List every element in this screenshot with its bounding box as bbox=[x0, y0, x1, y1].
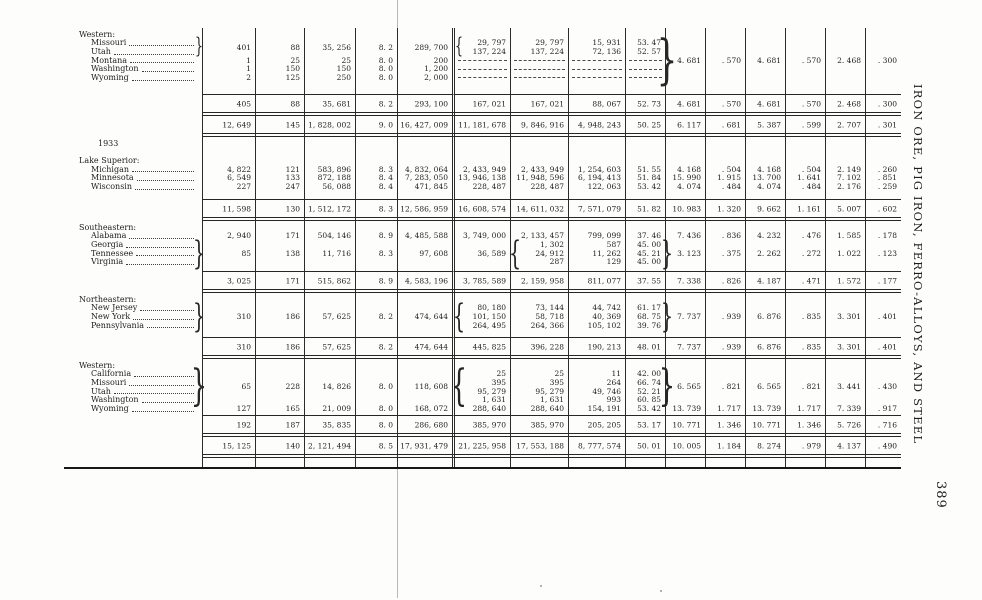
table-cell: 61. 1768. 7539. 76 bbox=[625, 293, 665, 337]
cell-value: 8. 2 bbox=[358, 304, 393, 330]
table-cell: 29, 797137, 224 bbox=[510, 28, 568, 94]
cell-value: 171 bbox=[258, 232, 300, 241]
cell-value: 4. 681 bbox=[677, 99, 701, 108]
table-cell: 4. 16815. 9904. 074 bbox=[665, 137, 705, 199]
cell-value: 250 bbox=[307, 73, 351, 82]
stub-line: California bbox=[64, 370, 195, 379]
table-cell: 2, 159, 958 bbox=[510, 271, 568, 289]
cell-value: . 570 bbox=[788, 39, 821, 82]
stub-line: Alabama bbox=[64, 232, 195, 241]
table-cell: . 716 bbox=[865, 415, 901, 433]
table-cell: 3. 301 bbox=[825, 337, 865, 355]
dash-filler bbox=[629, 69, 662, 70]
cell-value: 10. 983 bbox=[672, 204, 701, 213]
cell-value: 5. 387 bbox=[757, 120, 781, 129]
cell-value: 24, 912 bbox=[513, 249, 564, 258]
stub-cell: Southeastern:AlabamaGeorgiaTennesseeVirg… bbox=[64, 221, 202, 271]
stub-cell: 1933Lake Superior:MichiganMinnesotaWisco… bbox=[64, 137, 202, 199]
table-cell: 799, 09958711, 262129 bbox=[568, 221, 625, 271]
cell-value: 583, 896 bbox=[307, 165, 351, 174]
table-cell: 2, 121, 494 bbox=[304, 437, 355, 454]
dotted-leader bbox=[134, 373, 194, 377]
table-cell: 12, 649 bbox=[202, 116, 255, 133]
cell-value: 264 bbox=[571, 378, 621, 387]
table-cell: 15, 125 bbox=[202, 437, 255, 454]
table-cell bbox=[510, 458, 568, 467]
cell-value: . 375 bbox=[708, 240, 741, 266]
cell-value: . 826 bbox=[722, 276, 741, 285]
dotted-leader bbox=[140, 307, 194, 311]
cell-value: 95, 279 bbox=[457, 387, 506, 396]
cell-value: . 476 bbox=[788, 232, 821, 241]
cell-value: . 821 bbox=[788, 370, 821, 404]
cell-value: 264, 495 bbox=[457, 321, 506, 330]
table-cell: . 476. 272 bbox=[785, 221, 825, 271]
cell-value: 53. 17 bbox=[637, 420, 661, 429]
table-row: 19218735, 8358. 0286, 680385, 970385, 97… bbox=[64, 415, 901, 433]
cell-value: . 570 bbox=[722, 99, 741, 108]
cell-value: 288, 640 bbox=[513, 404, 564, 413]
cell-value: 515, 862 bbox=[318, 276, 351, 285]
cell-value: 7, 283, 050 bbox=[400, 173, 448, 182]
table-cell bbox=[202, 458, 255, 467]
table-cell: 8. 2 bbox=[355, 293, 397, 337]
margin-running-title: IRON ORE, PIG IRON, FERRO-ALLOYS, AND ST… bbox=[911, 84, 925, 444]
table-cell bbox=[625, 458, 665, 467]
table-cell: . 570 bbox=[785, 94, 825, 112]
table-cell: 35, 681 bbox=[304, 94, 355, 112]
table-cell: 515, 862 bbox=[304, 271, 355, 289]
brace-glyph: } bbox=[197, 304, 202, 330]
table-cell: 8. 0 bbox=[355, 415, 397, 433]
table-cell: 5. 387 bbox=[745, 116, 785, 133]
table-cell: 8. 08. 0 bbox=[355, 359, 397, 415]
table-cell: 8. 3 bbox=[355, 199, 397, 217]
cell-value: 140 bbox=[286, 441, 300, 450]
cell-value: 8. 0 bbox=[379, 420, 393, 429]
table-cell: . 430. 917 bbox=[865, 359, 901, 415]
dotted-leader bbox=[136, 252, 194, 256]
cell-value: 3. 123 bbox=[668, 240, 701, 266]
cell-value: 310 bbox=[205, 304, 251, 330]
table-cell: 10. 771 bbox=[665, 415, 705, 433]
table-row: 12, 6491451, 828, 0029. 016, 427, 00911,… bbox=[64, 116, 901, 133]
cell-value: 6. 565 bbox=[668, 370, 701, 404]
cell-value: . 260 bbox=[868, 165, 897, 174]
cell-value: 29, 797 bbox=[457, 39, 506, 48]
stub-line: Lake Superior: bbox=[64, 156, 195, 165]
table-row: 11, 5981301, 512, 1728. 312, 586, 95916,… bbox=[64, 199, 901, 217]
cell-value: . 401 bbox=[868, 304, 897, 330]
cell-value: 1, 254, 603 bbox=[571, 165, 621, 174]
cell-value: . 484 bbox=[788, 182, 821, 191]
table-cell: . 570 bbox=[705, 28, 745, 94]
cell-value: 15. 990 bbox=[668, 173, 701, 182]
cell-value: 66. 74 bbox=[628, 378, 661, 387]
table-cell bbox=[825, 458, 865, 467]
cell-value: 51. 84 bbox=[628, 173, 661, 182]
table-cell: 52. 73 bbox=[625, 94, 665, 112]
table-cell: 1. 161 bbox=[785, 199, 825, 217]
cell-value: 4. 074 bbox=[668, 182, 701, 191]
table-cell: 2. 1497. 1022. 176 bbox=[825, 137, 865, 199]
table-cell: . 835 bbox=[785, 337, 825, 355]
cell-value: 3, 749, 000 bbox=[457, 232, 506, 241]
table-cell: . 570 bbox=[785, 28, 825, 94]
table-cell: 4. 681 bbox=[665, 94, 705, 112]
table-row: Northeastern:New JerseyNew YorkPennsylva… bbox=[64, 293, 901, 337]
cell-value: 4. 681 bbox=[757, 99, 781, 108]
table-row: 15, 1251402, 121, 4948. 517, 931, 47921,… bbox=[64, 437, 901, 454]
cell-value: 227 bbox=[205, 182, 251, 191]
cell-value: 293, 100 bbox=[415, 99, 448, 108]
cell-value: 186 bbox=[286, 342, 300, 351]
table-cell: 385, 970 bbox=[510, 415, 568, 433]
cell-value: 2, 159, 958 bbox=[521, 276, 564, 285]
cell-value: 3, 025 bbox=[227, 276, 251, 285]
table-cell: 4. 681 bbox=[745, 94, 785, 112]
cell-value: 2, 000 bbox=[400, 73, 448, 82]
cell-value: 8. 4 bbox=[358, 173, 393, 182]
stub-line: Montana bbox=[64, 56, 195, 65]
cell-value: 4, 485, 588 bbox=[400, 232, 448, 241]
cell-value: 13. 700 bbox=[748, 173, 781, 182]
cell-value: 395 bbox=[513, 378, 564, 387]
table-cell: 5. 007 bbox=[825, 199, 865, 217]
state-label: Wisconsin bbox=[91, 182, 132, 191]
cell-value: 12, 649 bbox=[222, 120, 251, 129]
table-cell: 405 bbox=[202, 94, 255, 112]
table-cell: 4. 137 bbox=[825, 437, 865, 454]
cell-value: 2, 433, 949 bbox=[457, 165, 506, 174]
stub-line: 1933 bbox=[64, 139, 195, 148]
stub-cell bbox=[64, 437, 202, 454]
cell-value: 7. 737 bbox=[668, 304, 701, 330]
cell-value: 4. 074 bbox=[748, 182, 781, 191]
table-cell: 474, 644 bbox=[397, 337, 452, 355]
cell-value: 2. 468 bbox=[837, 99, 861, 108]
table-row: 31018657, 6258. 2474, 644445, 825396, 22… bbox=[64, 337, 901, 355]
table-cell: 205, 205 bbox=[568, 415, 625, 433]
cell-value: 4. 168 bbox=[748, 165, 781, 174]
cell-value: 165 bbox=[258, 404, 300, 413]
table-cell: 88 bbox=[255, 94, 304, 112]
table-cell bbox=[865, 458, 901, 467]
cell-value: 88, 067 bbox=[592, 99, 621, 108]
table-cell: 310 bbox=[202, 293, 255, 337]
cell-value: 6. 117 bbox=[677, 120, 701, 129]
cell-value: 288, 640 bbox=[457, 404, 506, 413]
table-cell: 65127 bbox=[202, 359, 255, 415]
cell-value: . 836 bbox=[708, 232, 741, 241]
cell-value: 25 bbox=[307, 56, 351, 65]
table-cell: 48. 01 bbox=[625, 337, 665, 355]
table-cell: . 401 bbox=[865, 337, 901, 355]
cell-value: 4, 822 bbox=[205, 165, 251, 174]
table-cell: 186 bbox=[255, 337, 304, 355]
brace-glyph: } bbox=[197, 370, 202, 404]
statistics-table: Western:MissouriUtahMontanaWashingtonWyo… bbox=[64, 28, 901, 469]
cell-value: 129 bbox=[571, 257, 621, 266]
cell-value: 289, 700 bbox=[400, 39, 448, 56]
dotted-leader bbox=[114, 51, 194, 55]
table-cell: 167, 021 bbox=[510, 94, 568, 112]
stub-cell bbox=[64, 116, 202, 133]
cell-value: 10. 005 bbox=[672, 441, 701, 450]
cell-value: 8. 5 bbox=[379, 441, 393, 450]
table-cell: {80, 180101, 150264, 495 bbox=[452, 293, 510, 337]
state-label: Wyoming bbox=[91, 404, 129, 413]
table-cell: 4, 832, 0647, 283, 050471, 845 bbox=[397, 137, 452, 199]
cell-value: 4. 232 bbox=[748, 232, 781, 241]
cell-value: . 177 bbox=[878, 276, 897, 285]
cell-value: 97, 608 bbox=[400, 240, 448, 266]
stub-line: Wisconsin bbox=[64, 182, 195, 191]
brace-glyph: } bbox=[197, 240, 202, 266]
table-cell: }7. 4363. 123 bbox=[665, 221, 705, 271]
table-cell: . 401 bbox=[865, 293, 901, 337]
cell-value: 2, 121, 494 bbox=[308, 441, 351, 450]
cell-value: 6, 194, 413 bbox=[571, 173, 621, 182]
table-cell: 8. 28. 08. 08. 0 bbox=[355, 28, 397, 94]
cell-value: 21, 009 bbox=[307, 404, 351, 413]
cell-value: 6. 565 bbox=[748, 370, 781, 404]
cell-value: 6. 876 bbox=[757, 342, 781, 351]
table-cell: 8. 5 bbox=[355, 437, 397, 454]
cell-value: 1. 346 bbox=[797, 420, 821, 429]
table-cell: 2. 468 bbox=[825, 28, 865, 94]
table-cell: 396, 228 bbox=[510, 337, 568, 355]
cell-value: 42. 00 bbox=[628, 370, 661, 379]
cell-value: 445, 825 bbox=[473, 342, 506, 351]
table-cell: 9, 846, 916 bbox=[510, 116, 568, 133]
cell-value: 385, 970 bbox=[473, 420, 506, 429]
table-cell: 1, 512, 172 bbox=[304, 199, 355, 217]
cell-value: 2 bbox=[205, 73, 251, 82]
table-cell: 1. 184 bbox=[705, 437, 745, 454]
cell-value: 1 bbox=[205, 56, 251, 65]
cell-value: . 570 bbox=[802, 99, 821, 108]
cell-value: 125 bbox=[258, 73, 300, 82]
table-cell bbox=[568, 458, 625, 467]
table-cell: 401112 bbox=[202, 28, 255, 94]
table-cell: 171138 bbox=[255, 221, 304, 271]
cell-value: . 570 bbox=[708, 39, 741, 82]
state-label: Virginia bbox=[91, 257, 123, 266]
cell-value: 8. 2 bbox=[358, 39, 393, 56]
cell-value: 65 bbox=[205, 370, 251, 404]
table-cell: }7. 737 bbox=[665, 293, 705, 337]
cell-value: 1. 572 bbox=[837, 276, 861, 285]
cell-value: . 939 bbox=[708, 304, 741, 330]
stub-line: Washington bbox=[64, 395, 195, 404]
table-cell: 16, 427, 009 bbox=[397, 116, 452, 133]
cell-value: 25 bbox=[258, 56, 300, 65]
cell-value: 504, 146 bbox=[307, 232, 351, 241]
cell-value: 192 bbox=[237, 420, 251, 429]
cell-value: 310 bbox=[237, 342, 251, 351]
table-cell: . 490 bbox=[865, 437, 901, 454]
cell-value: . 716 bbox=[878, 420, 897, 429]
cell-value: 6, 549 bbox=[205, 173, 251, 182]
table-cell: . 301 bbox=[865, 116, 901, 133]
table-bottom-rule bbox=[64, 467, 901, 469]
cell-value: 3. 441 bbox=[828, 370, 861, 404]
table-cell: 5. 726 bbox=[825, 415, 865, 433]
table-cell: 3. 301 bbox=[825, 293, 865, 337]
cell-value: 11, 181, 678 bbox=[458, 120, 506, 129]
table-cell: 3, 749, 00036, 589 bbox=[452, 221, 510, 271]
page-number: 389 bbox=[933, 481, 948, 509]
cell-value: 48. 01 bbox=[637, 342, 661, 351]
cell-value: 16, 608, 574 bbox=[458, 204, 506, 213]
cell-value: 13, 946, 138 bbox=[457, 173, 506, 182]
dotted-leader bbox=[132, 168, 194, 172]
cell-value: 8. 0 bbox=[358, 73, 393, 82]
table-cell: 167, 021 bbox=[452, 94, 510, 112]
table-cell: 286, 680 bbox=[397, 415, 452, 433]
cell-value: 130 bbox=[286, 204, 300, 213]
table-cell: 1126449, 746993154, 191 bbox=[568, 359, 625, 415]
table-cell: . 835 bbox=[785, 293, 825, 337]
table-cell: 140 bbox=[255, 437, 304, 454]
table-cell: 53. 4752. 57 bbox=[625, 28, 665, 94]
cell-value: 8. 3 bbox=[358, 240, 393, 266]
stub-line: Northeastern: bbox=[64, 295, 195, 304]
dash-filler bbox=[458, 60, 507, 61]
cell-value: 52. 57 bbox=[628, 47, 661, 56]
cell-value: 247 bbox=[258, 182, 300, 191]
stub-line: Washington bbox=[64, 64, 195, 73]
table-cell: . 599 bbox=[785, 116, 825, 133]
table-cell: 10. 771 bbox=[745, 415, 785, 433]
stub-cell bbox=[64, 271, 202, 289]
dash-filler bbox=[514, 77, 565, 78]
cell-value: 44, 742 bbox=[571, 304, 621, 313]
table-cell: 293, 100 bbox=[397, 94, 452, 112]
cell-value: 150 bbox=[307, 64, 351, 73]
dotted-leader bbox=[126, 244, 194, 248]
table-row bbox=[64, 458, 901, 467]
cell-value: 7, 571, 079 bbox=[578, 204, 621, 213]
cell-value: 799, 099 bbox=[571, 232, 621, 241]
cell-value: 4, 832, 064 bbox=[400, 165, 448, 174]
cell-value: 8. 2 bbox=[379, 99, 393, 108]
cell-value: 205, 205 bbox=[588, 420, 621, 429]
stub-cell bbox=[64, 199, 202, 217]
dotted-leader bbox=[142, 68, 194, 72]
cell-value: . 430 bbox=[868, 370, 897, 404]
table-cell: 35, 835 bbox=[304, 415, 355, 433]
cell-value: 68. 75 bbox=[628, 312, 661, 321]
table-cell: 310 bbox=[202, 337, 255, 355]
cell-value: 17, 553, 188 bbox=[516, 441, 564, 450]
cell-value: 4. 187 bbox=[757, 276, 781, 285]
cell-value: . 851 bbox=[868, 173, 897, 182]
table-cell: . 979 bbox=[785, 437, 825, 454]
cell-value: 11, 716 bbox=[307, 240, 351, 266]
cell-value: 264, 366 bbox=[513, 321, 564, 330]
cell-value: 8. 0 bbox=[358, 64, 393, 73]
stub-cell: Northeastern:New JerseyNew YorkPennsylva… bbox=[64, 293, 202, 337]
table-cell: 8, 777, 574 bbox=[568, 437, 625, 454]
stub-line: Virginia bbox=[64, 257, 195, 266]
table-cell: 171 bbox=[255, 271, 304, 289]
table-cell bbox=[745, 458, 785, 467]
cell-value: 4. 681 bbox=[748, 39, 781, 82]
cell-value: 1. 585 bbox=[828, 232, 861, 241]
table-cell: 16, 608, 574 bbox=[452, 199, 510, 217]
table-row: 4058835, 6818. 2293, 100167, 021167, 021… bbox=[64, 94, 901, 112]
cell-value: 7. 339 bbox=[828, 404, 861, 413]
table-cell: 10. 005 bbox=[665, 437, 705, 454]
cell-value: 1. 641 bbox=[788, 173, 821, 182]
cell-value: 186 bbox=[258, 304, 300, 330]
cell-value: 57, 625 bbox=[307, 304, 351, 330]
cell-value: 1. 161 bbox=[797, 204, 821, 213]
table-cell bbox=[255, 458, 304, 467]
table-cell: 145 bbox=[255, 116, 304, 133]
cell-value: 2. 176 bbox=[828, 182, 861, 191]
stub-line: Wyoming bbox=[64, 73, 195, 82]
cell-value: 1, 302 bbox=[513, 240, 564, 249]
table-cell: 8. 2 bbox=[355, 94, 397, 112]
table-cell: 4, 583, 196 bbox=[397, 271, 452, 289]
state-label: Wyoming bbox=[91, 73, 129, 82]
cell-value: 587 bbox=[571, 240, 621, 249]
cell-value: 8. 274 bbox=[757, 441, 781, 450]
cell-value: 45. 00 bbox=[628, 257, 661, 266]
stub-line: Missouri bbox=[64, 378, 195, 387]
cell-value: 5. 007 bbox=[837, 204, 861, 213]
table-cell bbox=[705, 458, 745, 467]
table-cell: {2539595, 2791, 631288, 640 bbox=[452, 359, 510, 415]
table-cell: 9. 0 bbox=[355, 116, 397, 133]
table-cell: {2, 133, 4571, 30224, 912287 bbox=[510, 221, 568, 271]
table-cell: . 602 bbox=[865, 199, 901, 217]
table-cell: 186 bbox=[255, 293, 304, 337]
table-cell: 14, 611, 032 bbox=[510, 199, 568, 217]
table-cell: 811, 077 bbox=[568, 271, 625, 289]
brace-glyph: } bbox=[197, 39, 202, 56]
cell-value: 121 bbox=[258, 165, 300, 174]
table-cell: 57, 625 bbox=[304, 337, 355, 355]
table-cell: 7. 737 bbox=[665, 337, 705, 355]
cell-value: 95, 279 bbox=[513, 387, 564, 396]
dotted-leader bbox=[132, 77, 194, 81]
cell-value: 122, 063 bbox=[571, 182, 621, 191]
dotted-leader bbox=[133, 316, 194, 320]
table-cell: 6. 876 bbox=[745, 293, 785, 337]
cell-value: 6. 876 bbox=[748, 304, 781, 330]
cell-value: 8. 0 bbox=[358, 370, 393, 404]
table-cell bbox=[452, 458, 510, 467]
table-cell: 4. 16813. 7004. 074 bbox=[745, 137, 785, 199]
cell-value: 15, 931 bbox=[571, 39, 621, 48]
cell-value: . 272 bbox=[788, 240, 821, 266]
table-cell bbox=[355, 458, 397, 467]
table-cell: 130 bbox=[255, 199, 304, 217]
cell-value: 811, 077 bbox=[588, 276, 621, 285]
table-cell: 73, 14458, 718264, 366 bbox=[510, 293, 568, 337]
table-cell: 17, 931, 479 bbox=[397, 437, 452, 454]
cell-value: 3. 301 bbox=[837, 342, 861, 351]
table-cell: 4, 8226, 549227 bbox=[202, 137, 255, 199]
table-cell: 2, 94085 bbox=[202, 221, 255, 271]
cell-value: . 123 bbox=[868, 240, 897, 266]
cell-value: 13. 739 bbox=[748, 404, 781, 413]
table-cell: . 5041. 641. 484 bbox=[785, 137, 825, 199]
